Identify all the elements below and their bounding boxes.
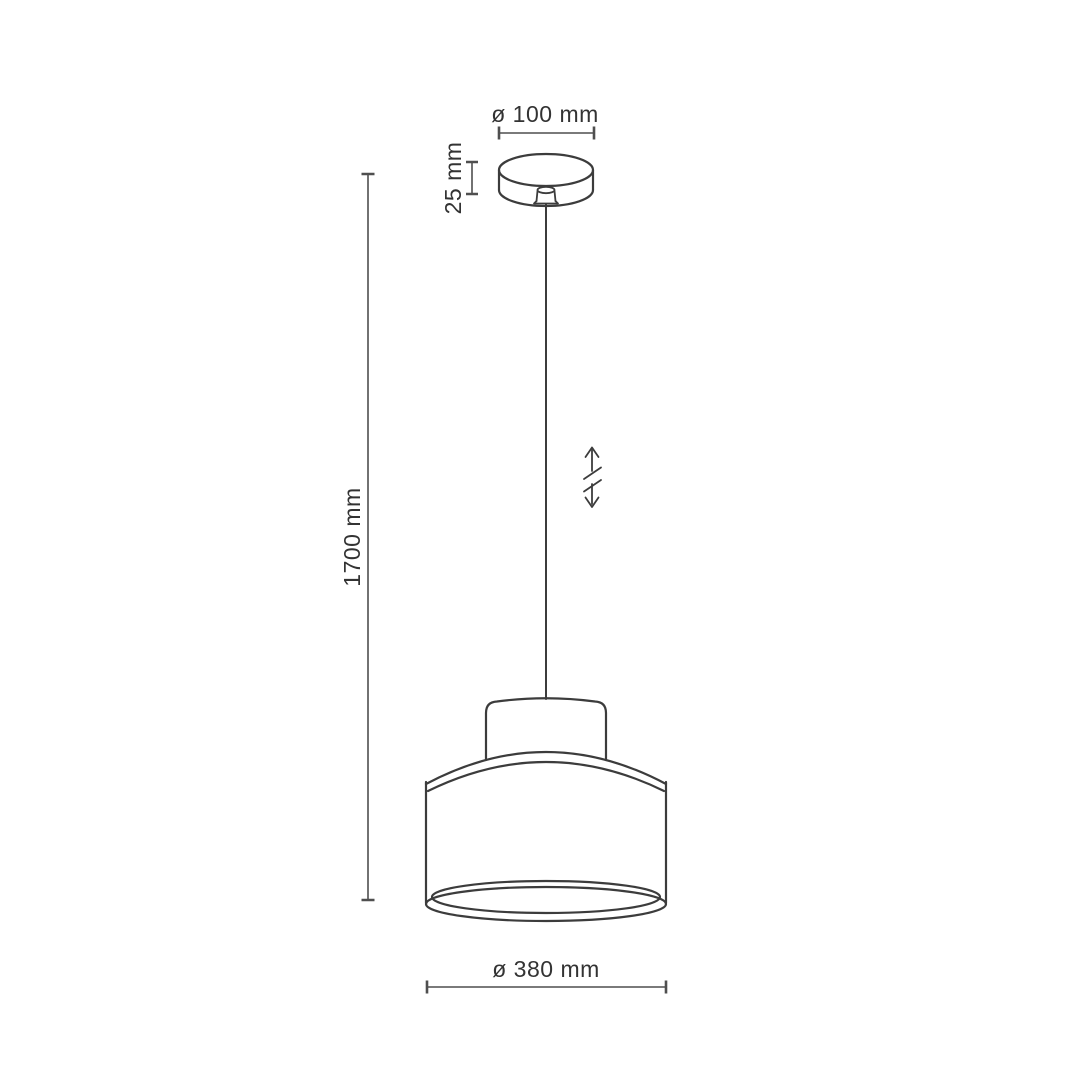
- cable-grip-top: [538, 187, 555, 193]
- cable-grip: [534, 187, 558, 204]
- dim-shade-diameter: ø 380 mm: [427, 956, 666, 994]
- canopy-diameter-label: ø 100 mm: [491, 101, 599, 127]
- dim-canopy-height: 25 mm: [440, 142, 478, 215]
- canopy-height-label: 25 mm: [440, 142, 466, 215]
- suspension-length-label: 1700 mm: [339, 487, 365, 586]
- canopy-top-ellipse: [499, 154, 593, 186]
- ceiling-canopy: [499, 154, 593, 206]
- shade-diameter-label: ø 380 mm: [492, 956, 600, 982]
- drum-shade: [426, 752, 666, 921]
- drum-bottom-outer-ellipse: [426, 887, 666, 921]
- dim-canopy-diameter: ø 100 mm: [491, 101, 599, 140]
- drum-bottom-diffuser-ellipse: [432, 881, 660, 913]
- drum-top-outer-rim: [426, 752, 666, 784]
- drum-sides: [426, 782, 666, 903]
- dim-suspension-length: 1700 mm: [339, 174, 375, 900]
- inner-shade: [486, 698, 606, 760]
- adjustable-height-icon: [584, 448, 601, 508]
- diagram-page: ø 100 mm 25 mm 1700 mm: [0, 0, 1080, 1080]
- pendant-lamp-dimension-diagram: ø 100 mm 25 mm 1700 mm: [0, 0, 1080, 1080]
